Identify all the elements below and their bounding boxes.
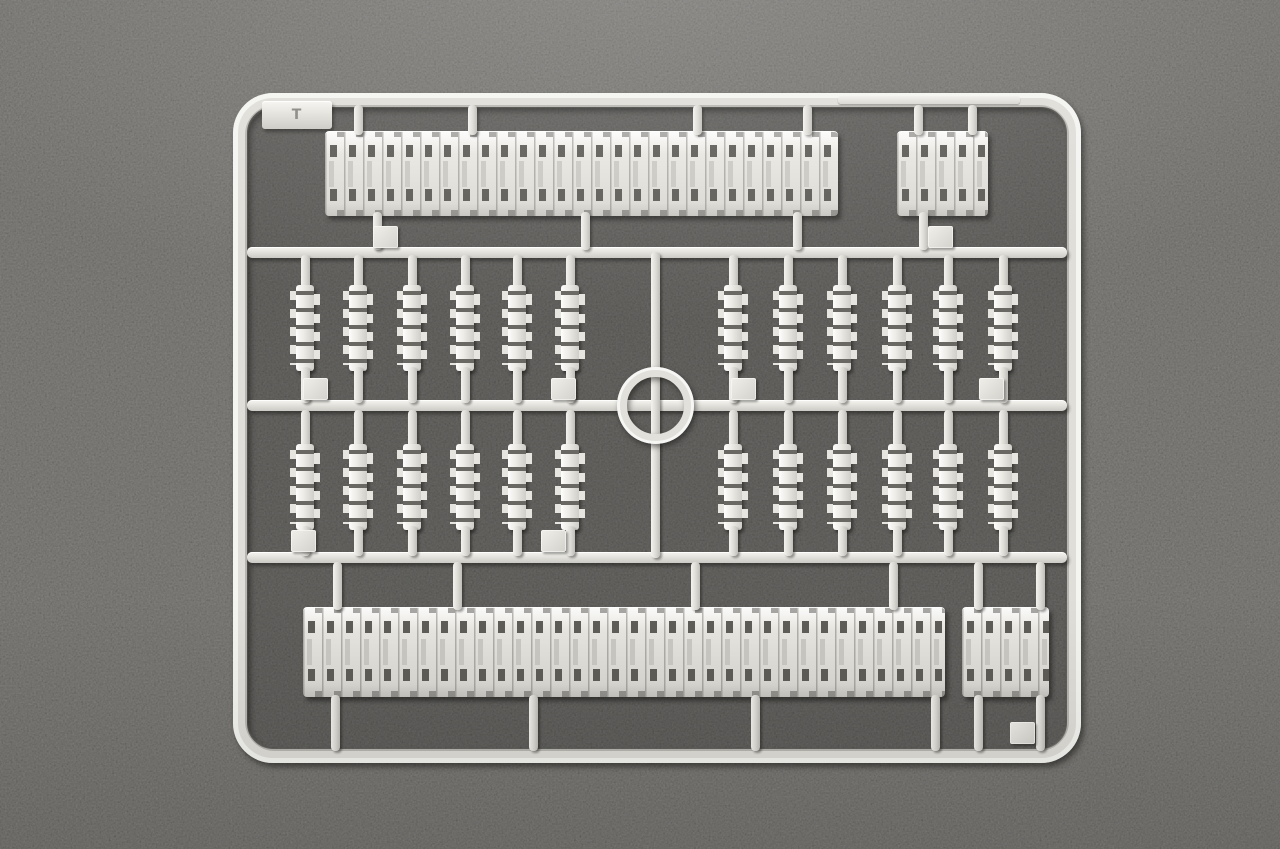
- sprue-gate-stub: [838, 526, 847, 556]
- sprue-runner: [513, 410, 522, 448]
- sprue-runner: [301, 410, 310, 448]
- sprue-runner: [889, 562, 898, 610]
- sprue-runner: [453, 562, 462, 610]
- sprue-gate-stub: [784, 367, 793, 403]
- track-strip-top: [325, 131, 838, 216]
- sprue-gate-stub: [893, 367, 902, 403]
- number-tab: [928, 226, 953, 248]
- sprue-runner: [513, 255, 522, 289]
- track-link: [994, 285, 1012, 371]
- sprue-runner: [529, 695, 538, 751]
- number-tab: [551, 378, 576, 400]
- sprue-runner: [461, 410, 470, 448]
- track-link: [456, 444, 474, 530]
- sprue-runner: [566, 255, 575, 289]
- sprue-runner: [1036, 562, 1045, 610]
- track-link: [779, 285, 797, 371]
- sprue-runner: [354, 410, 363, 448]
- sprue-runner: [784, 255, 793, 289]
- track-link: [994, 444, 1012, 530]
- track-link: [296, 285, 314, 371]
- number-tab: [541, 530, 566, 552]
- sprue-gate-stub: [581, 212, 590, 250]
- track-link: [403, 285, 421, 371]
- sprue-gate-stub: [893, 526, 902, 556]
- number-tab: [373, 226, 398, 248]
- corner-plate: T: [262, 101, 332, 129]
- sprue-gate-stub: [944, 526, 953, 556]
- track-link: [724, 285, 742, 371]
- sprue-gate-stub: [513, 367, 522, 403]
- sprue-runner: [893, 410, 902, 448]
- sprue-gate-stub: [999, 526, 1008, 556]
- sprue-runner: [354, 255, 363, 289]
- sprue-runner: [974, 562, 983, 610]
- sprue-runner: [944, 255, 953, 289]
- sprue-runner: [566, 410, 575, 448]
- sprue-gate-stub: [944, 367, 953, 403]
- sprue-runner: [751, 695, 760, 751]
- sprue-gate-stub: [784, 526, 793, 556]
- sprue-runner: [301, 255, 310, 289]
- sprue-gate-stub: [729, 526, 738, 556]
- sprue-runner: [893, 255, 902, 289]
- track-link: [561, 444, 579, 530]
- sprue-runner: [461, 255, 470, 289]
- sprue-gate-stub: [354, 526, 363, 556]
- number-tab: [291, 530, 316, 552]
- sprue-runner: [354, 105, 363, 135]
- track-link: [888, 285, 906, 371]
- track-link: [724, 444, 742, 530]
- track-strip-bottom: [303, 607, 945, 697]
- number-tab: [303, 378, 328, 400]
- sprue-runner: [408, 255, 417, 289]
- sprue-runner: [784, 410, 793, 448]
- center-ring: [617, 367, 694, 444]
- track-link: [833, 444, 851, 530]
- track-link: [833, 285, 851, 371]
- sprue-runner: [729, 255, 738, 289]
- sprue-gate-stub: [793, 212, 802, 250]
- track-link: [888, 444, 906, 530]
- sprue-gate-stub: [408, 526, 417, 556]
- sprue-gate-stub: [838, 367, 847, 403]
- track-link: [403, 444, 421, 530]
- sprue-runner: [999, 410, 1008, 448]
- sprue-gate-stub: [354, 367, 363, 403]
- track-link: [296, 444, 314, 530]
- track-link: [456, 285, 474, 371]
- track-link: [349, 285, 367, 371]
- sprue-gate-stub: [461, 526, 470, 556]
- photo-of-sprue: T: [0, 0, 1280, 849]
- track-link: [779, 444, 797, 530]
- sprue-runner: [838, 255, 847, 289]
- sprue-runner: [968, 105, 977, 135]
- track-segment-top-right: [897, 131, 988, 216]
- sprue-runner: [408, 410, 417, 448]
- track-link: [508, 285, 526, 371]
- sprue-runner: [838, 410, 847, 448]
- track-link: [349, 444, 367, 530]
- sprue-runner: [333, 562, 342, 610]
- sprue: T: [0, 0, 1280, 849]
- sprue-runner: [803, 105, 812, 135]
- sprue-runner: [468, 105, 477, 135]
- sprue-runner: [331, 695, 340, 751]
- sprue-runner: [914, 105, 923, 135]
- track-segment-bottom-right: [962, 607, 1049, 697]
- embossed-marking: [838, 96, 1020, 104]
- sprue-gate-stub: [566, 526, 575, 556]
- sprue-runner: [999, 255, 1008, 289]
- sprue-runner: [974, 695, 983, 751]
- sprue-gate-stub: [513, 526, 522, 556]
- number-tab: [979, 378, 1004, 400]
- track-link: [561, 285, 579, 371]
- corner-mark-text: T: [292, 107, 303, 123]
- sprue-gate-stub: [408, 367, 417, 403]
- sprue-runner: [1036, 695, 1045, 751]
- track-link: [508, 444, 526, 530]
- sprue-runner: [944, 410, 953, 448]
- sprue-runner: [931, 695, 940, 751]
- sprue-runner: [691, 562, 700, 610]
- sprue-runner: [729, 410, 738, 448]
- track-link: [939, 444, 957, 530]
- number-tab: [1010, 722, 1035, 744]
- track-link: [939, 285, 957, 371]
- sprue-gate-stub: [461, 367, 470, 403]
- sprue-runner: [693, 105, 702, 135]
- sprue-gate-stub: [919, 212, 928, 250]
- number-tab: [731, 378, 756, 400]
